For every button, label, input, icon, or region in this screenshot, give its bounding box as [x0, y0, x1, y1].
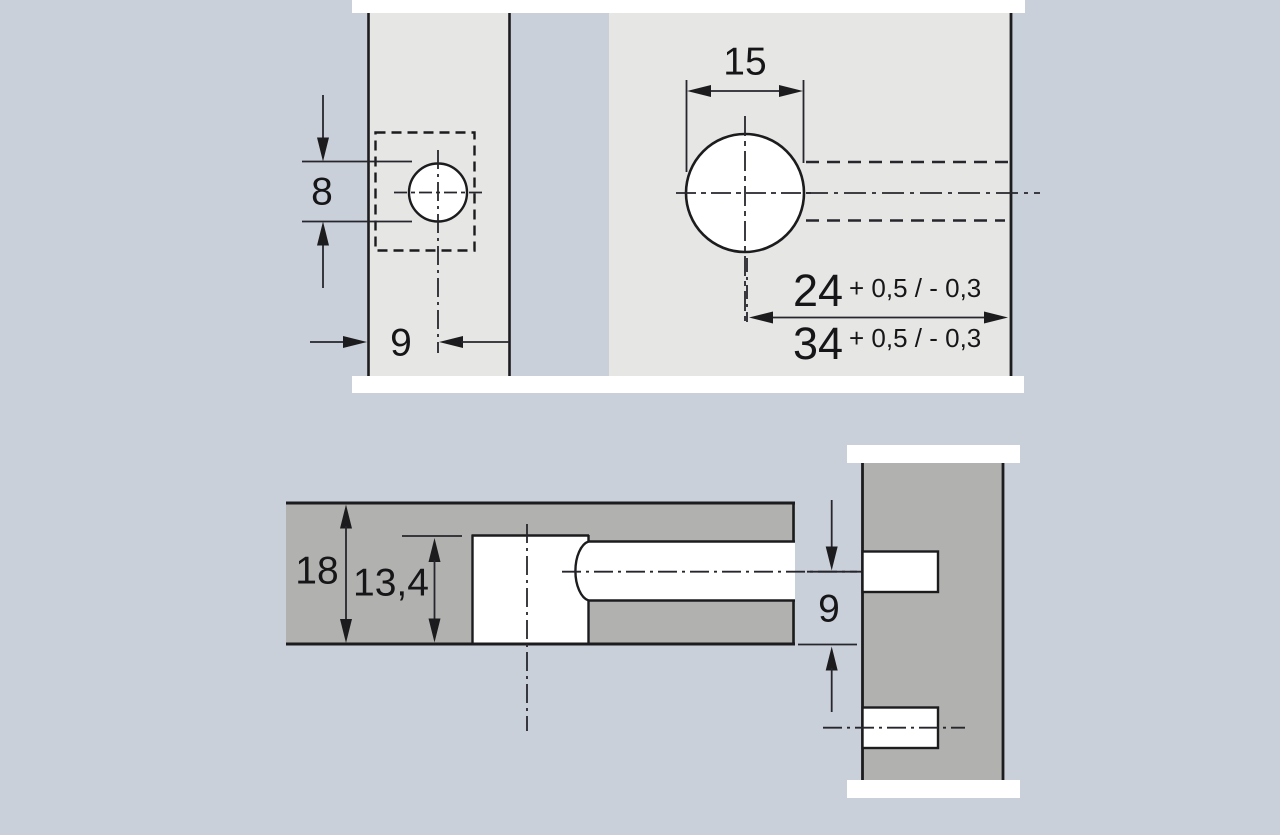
dim-24-tolerance: + 0,5 / - 0,3 — [849, 273, 981, 303]
top-view: 8 9 15 — [302, 0, 1040, 393]
dim-9-top-arrow-right — [343, 336, 367, 348]
dim-9-top-label: 9 — [390, 322, 412, 365]
technical-drawing: 8 9 15 — [0, 0, 1280, 835]
dim-18-label: 18 — [295, 550, 338, 593]
cabinet-section-top-band — [847, 445, 1020, 463]
drawing-svg: 8 9 15 — [0, 0, 1280, 835]
top-shelf-band — [352, 0, 1025, 13]
cabinet-section-bottom-band — [847, 780, 1020, 798]
section-view: 18 13,4 9 — [286, 445, 1020, 798]
cabinet-hole-upper — [863, 552, 939, 593]
dim-8-arrow-down — [317, 138, 329, 162]
dim-9-bottom: 9 — [798, 500, 857, 712]
dim-24-label: 24 — [793, 265, 843, 316]
dim-15-label: 15 — [723, 41, 766, 84]
bottom-shelf-band — [352, 376, 1024, 393]
cup-recess-fill — [472, 535, 589, 644]
dim-34-label: 34 — [793, 318, 843, 369]
dim-34-tolerance: + 0,5 / - 0,3 — [849, 323, 981, 353]
dim-8-arrow-up — [317, 222, 329, 246]
dim-9-arrow-up — [826, 647, 838, 671]
dim-8-label: 8 — [311, 171, 333, 214]
dim-9-arrow-down — [826, 547, 838, 571]
dim-9-bottom-label: 9 — [818, 588, 840, 631]
cabinet-section — [823, 445, 1020, 798]
dim-13-4-label: 13,4 — [353, 562, 429, 605]
